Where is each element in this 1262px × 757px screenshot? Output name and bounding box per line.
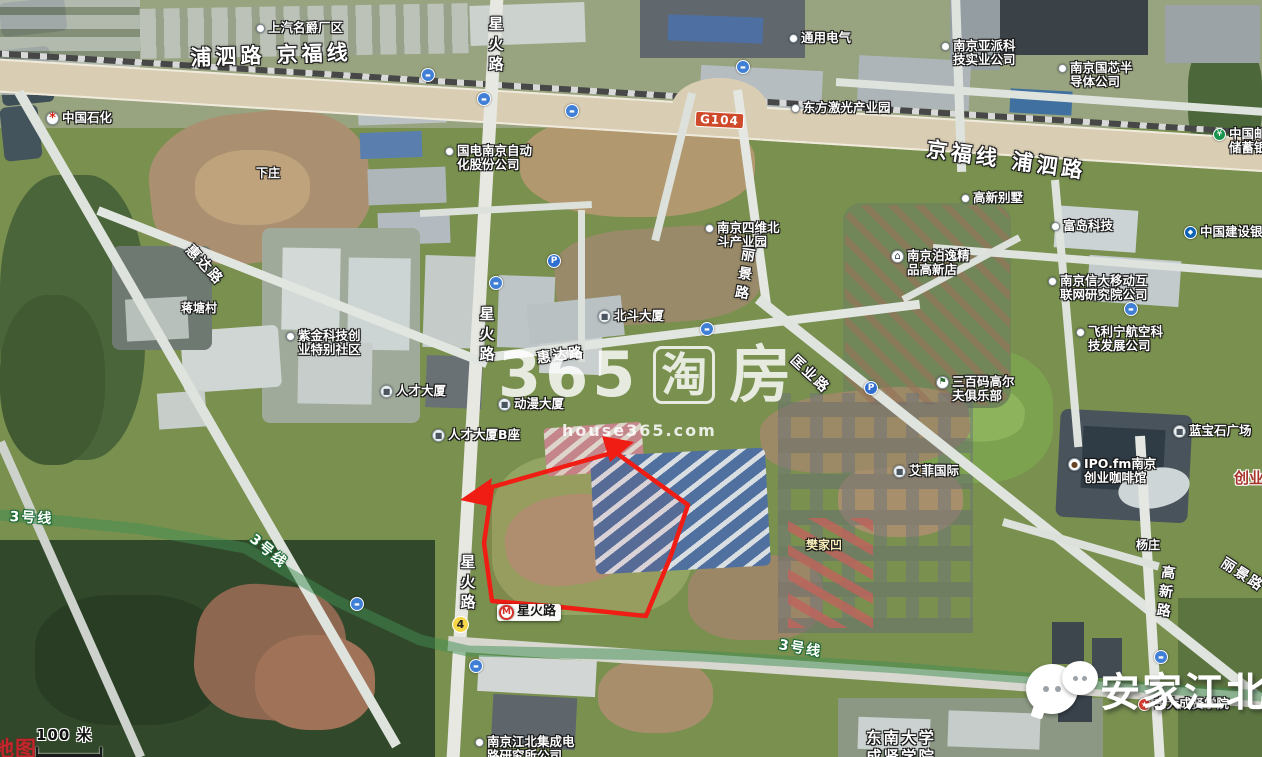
dot-icon [286, 332, 295, 341]
poi-ipo-fm-cafe[interactable]: ●IPO.fm南京创业咖啡馆 [1068, 457, 1156, 486]
building-icon: ■ [380, 385, 393, 398]
dot-icon [445, 147, 454, 156]
poi-label-text: 东南大学成贤学院 [866, 729, 936, 757]
poi-label-text: 国电南京自动化股份公司 [457, 144, 532, 173]
road-label: 星火路 [487, 16, 504, 76]
poi-label-text: 中国石化 [62, 111, 112, 125]
poi-rencai-tower-b[interactable]: ■人才大厦B座 [432, 428, 520, 442]
poi-label-text: 下庄 [256, 167, 280, 181]
golf-icon: ⚑ [936, 376, 949, 389]
poi-saic-mg-plant[interactable]: 上汽名爵厂区 [256, 21, 343, 35]
poi-fanjiaao-village[interactable]: 樊家凹 [806, 539, 842, 553]
road-label: 浦泗路 京福线 [190, 41, 352, 70]
poi-label-text: 中国建设银行 [1200, 225, 1262, 239]
poi-label-text: 北斗大厦 [614, 309, 664, 323]
watermark-house365-url: house365.com [562, 421, 717, 440]
bus-icon[interactable]: ▬ [477, 92, 491, 106]
dot-icon [941, 42, 950, 51]
poi-zijin-tech-community[interactable]: 紫金科技创业特别社区 [286, 329, 361, 358]
building-icon: ■ [893, 465, 906, 478]
dot-icon [961, 194, 970, 203]
parking-icon[interactable]: P [864, 381, 878, 395]
bus-icon[interactable]: ▬ [489, 276, 503, 290]
bus-icon[interactable]: ▬ [700, 322, 714, 336]
coffee-icon: ● [1068, 458, 1081, 471]
poi-psbc-bank[interactable]: ¥中国邮政储蓄银行 [1213, 127, 1262, 156]
satellite-map[interactable]: 浦泗路 京福线京福线 浦泗路星火路星火路星火路惠达路惠达路丽景路匡业路高新路丽景… [0, 0, 1262, 757]
building-icon: ■ [598, 310, 611, 323]
poi-xinghuolu-metro-station[interactable]: M星火路 [497, 604, 561, 621]
poi-label-text: 东方激光产业园 [803, 101, 891, 115]
bus-icon[interactable]: ▬ [469, 659, 483, 673]
poi-label-text: 高新别墅 [973, 191, 1023, 205]
dot-icon [705, 224, 714, 233]
poi-label-text: 南京四维北斗产业园 [717, 221, 780, 250]
road-badge-g104: G104 [695, 111, 745, 130]
sinopec-icon: * [46, 112, 59, 125]
poi-seu-chengxian-college[interactable]: 东南大学成贤学院 [866, 729, 936, 757]
poi-sapphire-plaza[interactable]: ■蓝宝石广场 [1173, 424, 1252, 438]
bus-icon[interactable]: ▬ [421, 68, 435, 82]
dot-icon [1051, 222, 1060, 231]
poi-aifei-international[interactable]: ■艾菲国际 [893, 464, 959, 478]
wechat-bubble-small-icon [1062, 661, 1098, 695]
poi-label-text: 中国邮政储蓄银行 [1229, 127, 1262, 156]
poi-beidou-tower[interactable]: ■北斗大厦 [598, 309, 664, 323]
dot-icon [789, 34, 798, 43]
watermark-anjia-jiangbei-text: 安家江北 [1100, 660, 1262, 718]
poi-boyi-hotel[interactable]: ⌂南京泊逸精品高新店 [891, 249, 970, 278]
hotel-icon: ⌂ [891, 250, 904, 263]
dot-icon [1076, 328, 1085, 337]
metro-icon: M [499, 605, 514, 620]
watermark-365taofang: 365 淘 房 [498, 344, 795, 406]
poi-fudao-tech[interactable]: 富岛科技 [1051, 219, 1113, 233]
poi-chuangye-clipped[interactable]: 创业 [1234, 470, 1262, 487]
poi-siwei-beidou-park[interactable]: 南京四维北斗产业园 [705, 221, 780, 250]
road-label: 星火路 [478, 306, 495, 366]
bus-icon[interactable]: ▬ [565, 104, 579, 118]
poi-label-text: 樊家凹 [806, 539, 842, 553]
poi-label-text: 人才大厦 [396, 384, 446, 398]
poi-general-electric[interactable]: 通用电气 [789, 31, 851, 45]
bus-icon[interactable]: ▬ [1124, 302, 1138, 316]
poi-sinopec[interactable]: *中国石化 [46, 111, 112, 125]
metro-line-label: 3号线 [777, 638, 823, 661]
poi-yapai-tech[interactable]: 南京亚派科技实业公司 [941, 39, 1016, 68]
corner-clipped-text: 地图 [0, 733, 37, 757]
poi-label-text: 紫金科技创业特别社区 [298, 329, 361, 358]
road-label: 星火路 [459, 554, 476, 614]
watermark-365: 365 [498, 344, 639, 406]
poi-guoxin-semiconductor[interactable]: 南京国芯半导体公司 [1058, 61, 1133, 90]
road-label: 京福线 浦泗路 [925, 138, 1088, 183]
poi-label-text: 上汽名爵厂区 [268, 21, 343, 35]
poi-label-text: 南京亚派科技实业公司 [953, 39, 1016, 68]
watermark-tao-boxed: 淘 [653, 346, 715, 404]
poi-gaoxin-villa[interactable]: 高新别墅 [961, 191, 1023, 205]
dot-icon [1048, 277, 1057, 286]
poi-label-text: 星火路 [517, 605, 556, 620]
dot-icon [1058, 64, 1067, 73]
poi-rencai-tower[interactable]: ■人才大厦 [380, 384, 446, 398]
poi-label-text: 杨庄 [1136, 539, 1160, 553]
bus-icon[interactable]: ▬ [350, 597, 364, 611]
poi-label-text: 南京信大移动互联网研究院公司 [1060, 274, 1148, 303]
road-badge-route4: 4 [452, 616, 469, 633]
poi-label-text: 富岛科技 [1063, 219, 1113, 233]
scale-bar: 100 米 [36, 724, 102, 757]
road-label: 丽景路 [1218, 556, 1262, 595]
building-icon: ■ [1173, 425, 1186, 438]
scale-bar-bracket [36, 747, 102, 757]
poi-jiangtang-village[interactable]: 蒋塘村 [181, 302, 217, 316]
dot-icon [791, 104, 800, 113]
dot-icon [256, 24, 265, 33]
poi-guodian-nanjing-automation[interactable]: 国电南京自动化股份公司 [445, 144, 532, 173]
road-label: 惠达路 [182, 243, 226, 289]
metro-line-label: 3号线 [246, 532, 289, 572]
metro-line-label: 3号线 [9, 510, 53, 528]
road-label: 丽景路 [731, 246, 755, 305]
poi-label-text: 蒋塘村 [181, 302, 217, 316]
poi-jiangbei-ic-institute[interactable]: 南京江北集成电路研究所公司 [475, 735, 575, 757]
bank-green-icon: ¥ [1213, 128, 1226, 141]
poi-label-text: 艾菲国际 [909, 464, 959, 478]
poi-label-text: 通用电气 [801, 31, 851, 45]
poi-label-text: 创业 [1234, 470, 1262, 487]
poi-feilining-aviation[interactable]: 飞利宁航空科技发展公司 [1076, 325, 1163, 354]
poi-label-text: 南京国芯半导体公司 [1070, 61, 1133, 90]
poi-label-text: 三百码高尔夫俱乐部 [952, 375, 1015, 404]
poi-label-text: 南京泊逸精品高新店 [907, 249, 970, 278]
building-icon: ■ [432, 429, 445, 442]
bank-ccb-icon: ◆ [1184, 226, 1197, 239]
poi-ccb-bank[interactable]: ◆中国建设银行 [1184, 225, 1262, 239]
road-label: 高新路 [1153, 564, 1175, 622]
dot-icon [475, 738, 484, 747]
poi-dongfang-laser-park[interactable]: 东方激光产业园 [791, 101, 891, 115]
poi-label-text: 人才大厦B座 [448, 428, 520, 442]
poi-300yard-golf-club[interactable]: ⚑三百码高尔夫俱乐部 [936, 375, 1015, 404]
parking-icon[interactable]: P [547, 254, 561, 268]
poi-label-text: 飞利宁航空科技发展公司 [1088, 325, 1163, 354]
poi-yangzhuang-village[interactable]: 杨庄 [1136, 539, 1160, 553]
watermark-fang: 房 [729, 344, 795, 406]
scale-bar-label: 100 米 [36, 726, 93, 744]
watermark-anjia-jiangbei: 安家江北 [1026, 660, 1262, 718]
bus-icon[interactable]: ▬ [736, 60, 750, 74]
poi-label-text: 南京江北集成电路研究所公司 [487, 735, 575, 757]
poi-xinda-mobile-institute[interactable]: 南京信大移动互联网研究院公司 [1048, 274, 1148, 303]
poi-label-text: IPO.fm南京创业咖啡馆 [1084, 457, 1156, 486]
poi-xiazhuang-village[interactable]: 下庄 [256, 167, 280, 181]
poi-label-text: 蓝宝石广场 [1189, 424, 1252, 438]
